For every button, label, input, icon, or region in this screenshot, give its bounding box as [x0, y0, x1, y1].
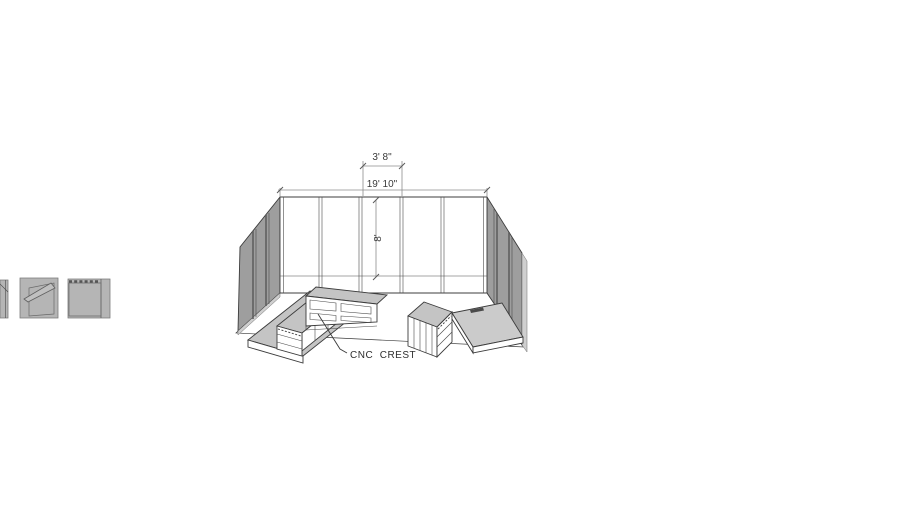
sketchup-viewport[interactable]: 3' 8" 19' 10" 8' CNC CREST [0, 0, 910, 512]
cnc-crest-text[interactable]: CNC CREST [350, 350, 416, 361]
model-drawing[interactable]: 3' 8" 19' 10" 8' CNC CREST [0, 0, 910, 512]
back-wall[interactable] [280, 197, 487, 293]
component-thumbnail-1[interactable] [0, 280, 8, 318]
room-model[interactable] [236, 197, 527, 363]
dim-wall-height-text[interactable]: 8' [373, 234, 384, 242]
component-thumbnail-3[interactable] [68, 279, 110, 318]
dim-bay-width-text[interactable]: 3' 8" [372, 152, 392, 163]
island-cabinet[interactable] [408, 302, 452, 357]
component-thumbnail-2[interactable] [20, 278, 58, 318]
dim-wall-length-text[interactable]: 19' 10" [367, 179, 398, 190]
dimension-wall-length[interactable]: 19' 10" [277, 179, 490, 197]
